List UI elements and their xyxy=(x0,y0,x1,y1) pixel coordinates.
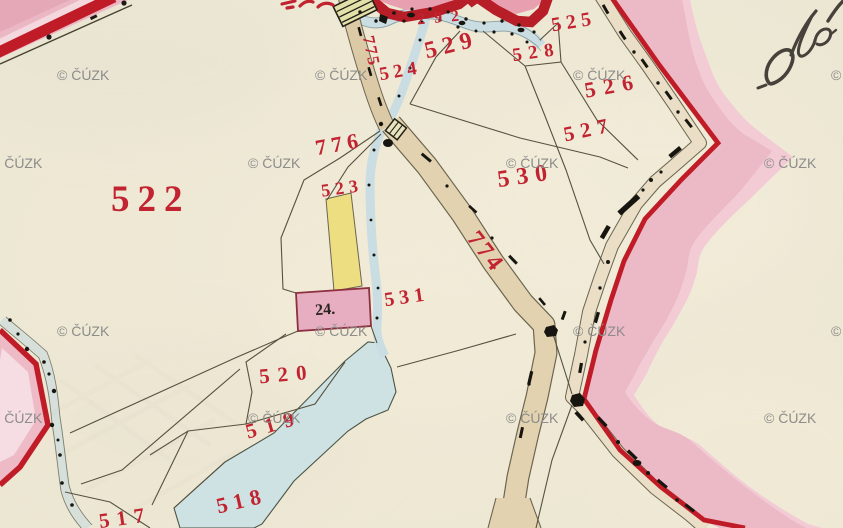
svg-text:© ČÚZK: © ČÚZK xyxy=(573,67,626,83)
svg-text:522: 522 xyxy=(111,179,191,220)
svg-text:© ČÚZK: © ČÚZK xyxy=(57,323,110,339)
svg-text:© ČÚZK: © ČÚZK xyxy=(506,155,559,171)
svg-text:© ČÚZK: © ČÚZK xyxy=(506,410,559,426)
svg-text:© ČÚZK: © ČÚZK xyxy=(831,67,843,83)
svg-text:© ČÚZK: © ČÚZK xyxy=(573,323,626,339)
svg-text:© ČÚZK: © ČÚZK xyxy=(248,155,301,171)
svg-text:24.: 24. xyxy=(315,301,336,319)
svg-text:© ČÚZK: © ČÚZK xyxy=(315,323,368,339)
svg-text:520: 520 xyxy=(258,360,315,389)
svg-text:© ČÚZK: © ČÚZK xyxy=(248,410,301,426)
svg-text:© ČÚZK: © ČÚZK xyxy=(764,410,817,426)
svg-text:© ČÚZK: © ČÚZK xyxy=(0,155,43,171)
svg-text:© ČÚZK: © ČÚZK xyxy=(764,155,817,171)
svg-text:© ČÚZK: © ČÚZK xyxy=(57,67,110,83)
svg-text:© ČÚZK: © ČÚZK xyxy=(0,410,43,426)
svg-text:© ČÚZK: © ČÚZK xyxy=(831,323,843,339)
svg-text:© ČÚZK: © ČÚZK xyxy=(315,67,368,83)
